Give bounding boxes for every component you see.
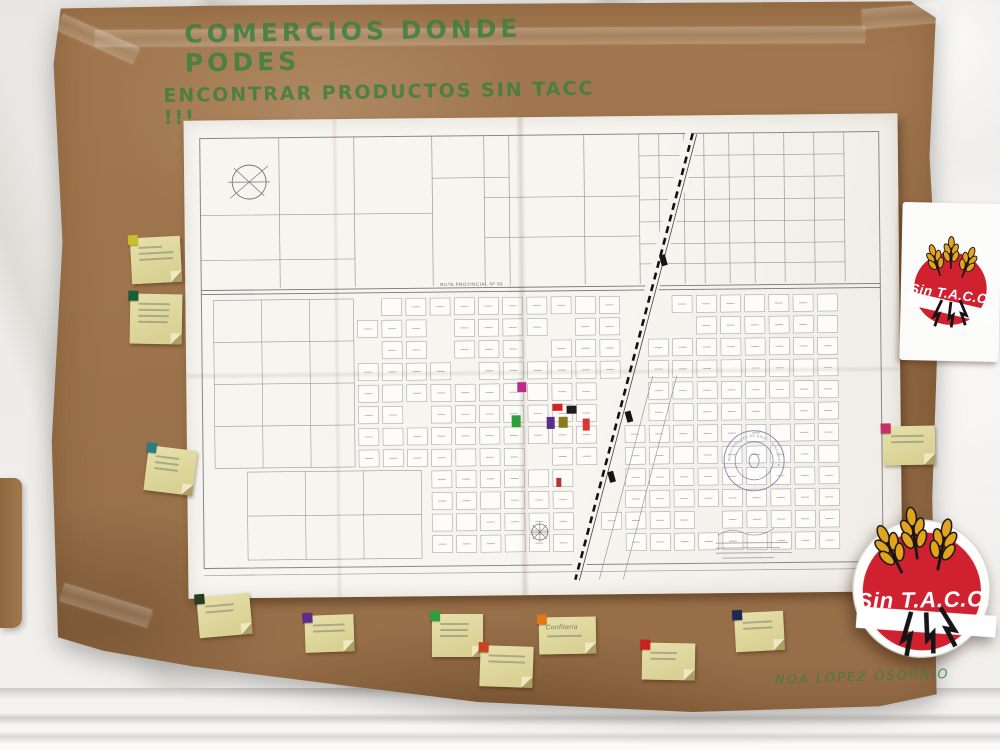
note-scribble (205, 603, 234, 607)
note-scribble (154, 467, 178, 472)
note-scribble (488, 654, 525, 657)
note-folded-corner (171, 333, 182, 344)
note-scribble (138, 303, 170, 306)
note-scribble (547, 635, 582, 638)
sticky-note-2 (130, 294, 183, 345)
sticky-note-11 (734, 611, 785, 653)
sticky-note-7 (432, 614, 483, 657)
sin-tacc-logo: Sin T.A.C.C. (824, 481, 1000, 675)
map-shop-marker (553, 404, 563, 411)
handwritten-title: COMERCIOS DONDE PODES ENCONTRAR PRODUCTO… (184, 12, 606, 128)
note-folded-corner (585, 643, 596, 654)
note-scribble (139, 251, 174, 255)
note-scribble (440, 635, 468, 637)
svg-text:RUTA PROVINCIAL Nº 86: RUTA PROVINCIAL Nº 86 (440, 281, 503, 287)
sticky-note-3 (143, 445, 197, 496)
note-scribble (139, 257, 173, 261)
map-shop-marker (583, 419, 590, 431)
note-color-marker (194, 594, 205, 605)
map-shop-marker (547, 417, 555, 429)
note-scribble (488, 660, 525, 663)
note-color-marker (537, 614, 547, 624)
cadastral-map: RUTA PROVINCIAL Nº 86MUNICIPALIDAD DE GR… (184, 113, 903, 598)
map-shop-marker (556, 478, 561, 487)
note-folded-corner (343, 640, 354, 651)
note-scribble (650, 652, 677, 654)
note-scribble (742, 620, 772, 624)
note-scribble (650, 658, 676, 660)
note-folded-corner (924, 454, 935, 465)
note-color-marker (128, 235, 139, 246)
sticky-note-1 (130, 236, 182, 285)
sin-tacc-sticker-round: Sin T.A.C.C. (824, 481, 1000, 675)
sin-tacc-sticker-card: Sin T.A.C.C. (899, 202, 1000, 362)
note-color-marker (430, 611, 440, 621)
note-scribble (206, 609, 234, 613)
note-scribble (138, 315, 169, 318)
note-scribble (440, 623, 469, 625)
note-color-marker (128, 291, 138, 301)
note-folded-corner (241, 623, 253, 635)
sticky-note-4 (883, 426, 936, 466)
note-scribble (313, 629, 345, 632)
note-scribble (155, 461, 179, 466)
note-folded-corner (773, 639, 785, 651)
note-color-marker (146, 442, 157, 453)
note-color-marker (732, 610, 743, 621)
note-scribble (440, 629, 468, 631)
note-folded-corner (181, 484, 193, 496)
note-scribble (891, 441, 924, 444)
note-scribble (138, 246, 162, 249)
city-map-sheet: RUTA PROVINCIAL Nº 86MUNICIPALIDAD DE GR… (184, 113, 903, 598)
note-scribble (138, 321, 168, 324)
note-scribble (138, 309, 169, 312)
map-shop-marker (567, 406, 577, 414)
note-folded-corner (521, 677, 532, 688)
sticky-note-6 (304, 614, 354, 653)
map-shop-marker (517, 382, 526, 392)
note-folded-corner (171, 271, 183, 283)
sin-tacc-logo: Sin T.A.C.C. (899, 202, 1000, 362)
note-color-marker (881, 423, 891, 433)
note-color-marker (478, 642, 488, 652)
note-scribble (743, 626, 773, 630)
paper-scrap-left-edge (0, 478, 22, 628)
note-scribble (891, 435, 924, 438)
note-color-marker (640, 640, 650, 650)
note-text: Confiteria (546, 624, 591, 632)
note-folded-corner (684, 669, 695, 680)
map-shop-marker (559, 417, 568, 428)
sticky-note-10 (642, 643, 696, 681)
note-scribble (313, 623, 345, 626)
sticky-note-5 (196, 593, 252, 638)
sticky-note-9: Confiteria (539, 617, 597, 655)
sticky-note-8 (479, 645, 533, 688)
note-color-marker (302, 613, 312, 623)
svg-text:Sin T.A.C.C.: Sin T.A.C.C. (857, 586, 991, 613)
map-shop-marker (512, 415, 521, 427)
title-line-1: COMERCIOS DONDE PODES (184, 12, 605, 77)
note-scribble (156, 455, 180, 460)
